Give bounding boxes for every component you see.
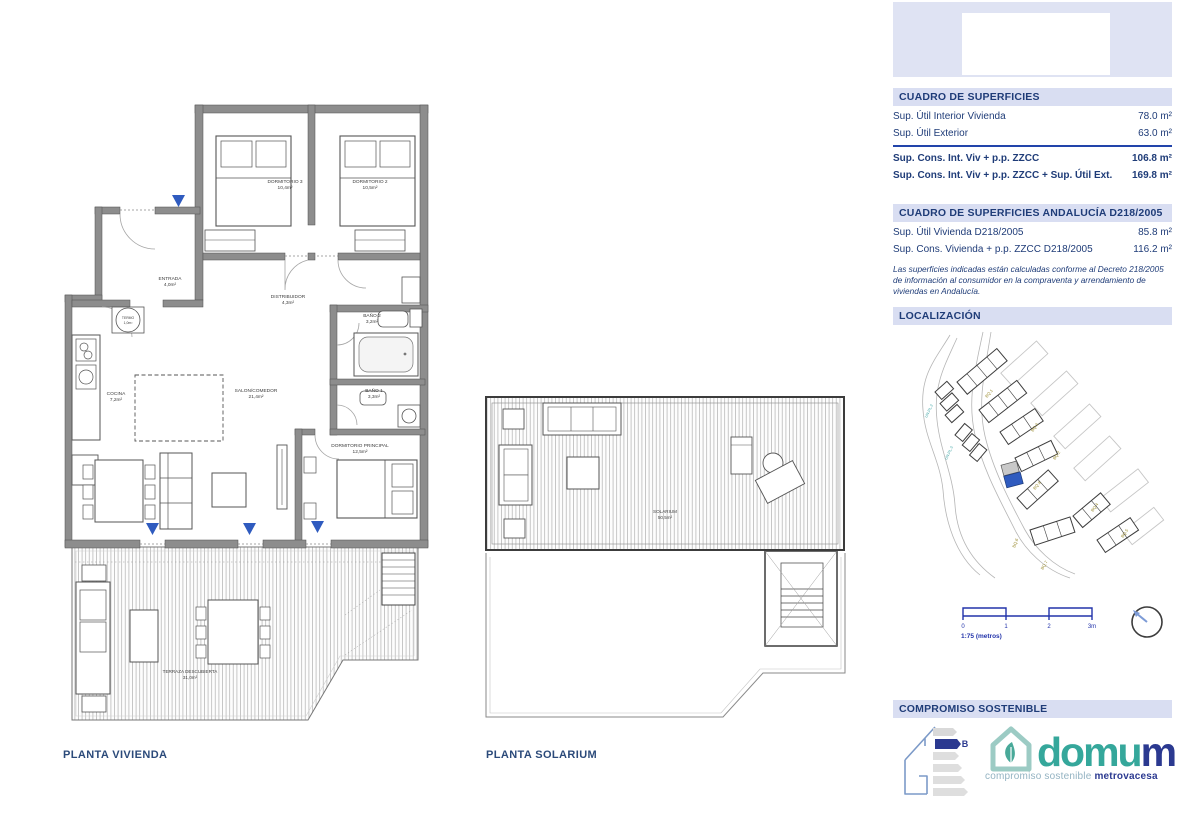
table-row: Sup. Cons. Vivienda + p.p. ZZCC D218/200… bbox=[893, 241, 1172, 258]
andalucia-table: Sup. Útil Vivienda D218/2005 85.8 m² Sup… bbox=[893, 224, 1172, 298]
solarium-stair bbox=[765, 551, 837, 646]
termo-unit bbox=[112, 307, 144, 333]
room-label-bano1: BAÑO 1 bbox=[365, 387, 383, 394]
north-compass-icon bbox=[1128, 603, 1166, 641]
room-area-bano1: 3,3m² bbox=[368, 394, 381, 400]
scale-tick-0: 0 bbox=[961, 624, 965, 630]
table-row: Sup. Cons. Int. Viv + p.p. ZZCC 106.8 m² bbox=[893, 150, 1172, 167]
table-row: Sup. Útil Exterior 63.0 m² bbox=[893, 125, 1172, 142]
room-area-bano2: 3,2m² bbox=[366, 319, 379, 325]
svg-text:BQ.7: BQ.7 bbox=[1040, 559, 1049, 570]
energy-rating-icon: B bbox=[897, 722, 977, 800]
room-label-terraza: TERRAZA DESCUBIERTA bbox=[163, 669, 219, 674]
domum-tagline: compromiso sostenible metrovacesa bbox=[985, 771, 1185, 782]
bed-dormitorio2 bbox=[340, 136, 415, 251]
scale-bar: 0 1 2 3m 1:75 (metros) bbox=[953, 598, 1103, 640]
plan-title-solarium: PLANTA SOLARIUM bbox=[486, 749, 597, 761]
scale-tick-1: 1 bbox=[1004, 624, 1008, 630]
energy-scale-bars: B bbox=[929, 728, 968, 796]
svg-text:UN.PL.2: UN.PL.2 bbox=[924, 404, 934, 419]
row-value: 85.8 m² bbox=[1138, 224, 1172, 241]
logo-placeholder bbox=[962, 13, 1110, 75]
scale-caption: 1:75 (metros) bbox=[961, 633, 1002, 640]
room-label-dormitorio2: DORMITORIO 2 bbox=[352, 179, 387, 185]
room-label-salon: SALON/COMEDOR bbox=[235, 388, 278, 394]
room-area-entrada: 4,0m² bbox=[164, 282, 177, 288]
svg-text:UN.PL.3: UN.PL.3 bbox=[944, 446, 954, 461]
room-area-cocina: 7,2m² bbox=[110, 397, 123, 403]
row-value: 78.0 m² bbox=[1138, 108, 1172, 125]
terrace-area: TERRAZA DESCUBIERTA 31,0m² bbox=[72, 547, 418, 720]
domum-logo: domum compromiso sostenible metrovacesa bbox=[985, 723, 1185, 782]
room-area-distribuidor: 4,3m² bbox=[282, 300, 295, 306]
floor-plan-vivienda: TERRAZA DESCUBIERTA 31,0m² bbox=[60, 95, 435, 740]
room-label-solarium: SOLARIUM bbox=[653, 509, 677, 514]
room-area-salon: 21,4m² bbox=[249, 394, 264, 400]
row-label: Sup. Cons. Int. Viv + p.p. ZZCC bbox=[893, 150, 1039, 167]
room-label-dormitorio3: DORMITORIO 3 bbox=[267, 179, 302, 185]
room-area-principal: 12,5m² bbox=[353, 449, 368, 455]
surfaces-table: Sup. Útil Interior Vivienda 78.0 m² Sup.… bbox=[893, 108, 1172, 184]
room-label-principal: DORMITORIO PRINCIPAL bbox=[331, 443, 389, 449]
domum-word-navy: m bbox=[1141, 729, 1175, 775]
domum-house-icon bbox=[985, 723, 1037, 773]
site-map: BQ.1 BQ.2 BQ.3 BQ.4 BQ.5 BQ.6 BQ.7 BQ.8 … bbox=[895, 330, 1180, 585]
room-area-dormitorio2: 10,5m² bbox=[363, 185, 378, 191]
room-label-bano2: BAÑO 2 bbox=[363, 312, 381, 319]
room-label-entrada: ENTRADA bbox=[159, 276, 183, 282]
room-label-cocina: COCINA bbox=[107, 391, 126, 397]
plan-title-vivienda: PLANTA VIVIENDA bbox=[63, 749, 167, 761]
bed-principal bbox=[304, 457, 417, 519]
room-area-termo: 1,0m² bbox=[124, 321, 134, 325]
tagline-bold: metrovacesa bbox=[1094, 771, 1157, 782]
room-area-solarium: 50,5m² bbox=[658, 515, 673, 520]
row-label: Sup. Útil Interior Vivienda bbox=[893, 108, 1006, 125]
row-label: Sup. Útil Exterior bbox=[893, 125, 968, 142]
row-value: 63.0 m² bbox=[1138, 125, 1172, 142]
table-row: Sup. Cons. Int. Viv + p.p. ZZCC + Sup. Ú… bbox=[893, 167, 1172, 184]
divider-rule bbox=[893, 145, 1172, 147]
scale-tick-2: 2 bbox=[1047, 624, 1051, 630]
decree-note: Las superficies indicadas están calculad… bbox=[893, 264, 1172, 298]
plan-sheet: TERRAZA DESCUBIERTA 31,0m² bbox=[0, 0, 1200, 824]
row-value: 169.8 m² bbox=[1132, 167, 1172, 184]
section-header-superficies: CUADRO DE SUPERFICIES bbox=[893, 88, 1172, 106]
room-area-terraza: 31,0m² bbox=[183, 675, 198, 680]
salon-furniture bbox=[83, 445, 287, 529]
row-label: Sup. Cons. Int. Viv + p.p. ZZCC + Sup. Ú… bbox=[893, 167, 1112, 184]
energy-rating-letter: B bbox=[962, 739, 969, 749]
bathtub bbox=[354, 309, 422, 376]
room-label-distribuidor: DISTRIBUIDOR bbox=[271, 294, 306, 300]
scale-tick-3: 3m bbox=[1088, 624, 1096, 630]
room-label-termo: TERMO bbox=[122, 316, 135, 320]
table-row: Sup. Útil Interior Vivienda 78.0 m² bbox=[893, 108, 1172, 125]
floor-plan-solarium: SOLARIUM 50,5m² bbox=[483, 393, 851, 728]
row-value: 106.8 m² bbox=[1132, 150, 1172, 167]
closet bbox=[402, 277, 420, 303]
domum-wordmark: domum bbox=[1037, 732, 1175, 773]
row-label: Sup. Útil Vivienda D218/2005 bbox=[893, 224, 1023, 241]
bed-dormitorio3 bbox=[205, 136, 291, 251]
svg-text:BQ.1: BQ.1 bbox=[984, 388, 994, 399]
domum-word-teal: domu bbox=[1037, 729, 1141, 775]
entry-marker bbox=[172, 195, 185, 207]
section-header-andalucia: CUADRO DE SUPERFICIES ANDALUCÍA D218/200… bbox=[893, 204, 1172, 222]
row-label: Sup. Cons. Vivienda + p.p. ZZCC D218/200… bbox=[893, 241, 1093, 258]
section-header-compromiso: COMPROMISO SOSTENIBLE bbox=[893, 700, 1172, 718]
table-row: Sup. Útil Vivienda D218/2005 85.8 m² bbox=[893, 224, 1172, 241]
section-header-localizacion: LOCALIZACIÓN bbox=[893, 307, 1172, 325]
row-value: 116.2 m² bbox=[1133, 241, 1172, 258]
tagline-plain: compromiso sostenible bbox=[985, 771, 1094, 782]
svg-text:BQ.6: BQ.6 bbox=[1011, 537, 1019, 548]
top-logo-box bbox=[893, 2, 1172, 77]
room-area-dormitorio3: 10,4m² bbox=[278, 185, 293, 191]
solarium-deck: SOLARIUM 50,5m² bbox=[486, 397, 844, 550]
